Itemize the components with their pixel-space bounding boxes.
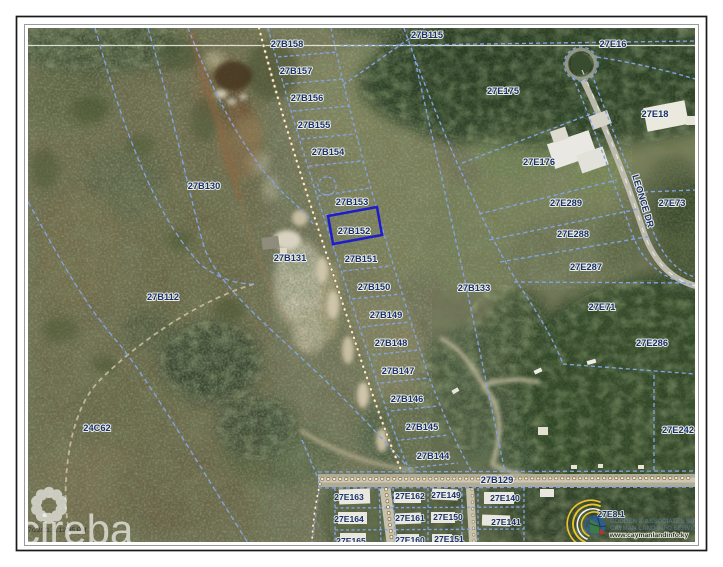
svg-text:27E161: 27E161 <box>395 513 425 523</box>
svg-text:24C62: 24C62 <box>83 423 110 433</box>
svg-text:CAYMAN LAND INFO SERVICES: CAYMAN LAND INFO SERVICES <box>610 525 705 532</box>
svg-text:27E175: 27E175 <box>487 86 519 96</box>
svg-text:27E176: 27E176 <box>523 157 555 167</box>
svg-text:27B158: 27B158 <box>271 39 304 49</box>
svg-text:27B153: 27B153 <box>336 197 369 207</box>
svg-text:27E162: 27E162 <box>395 491 425 501</box>
svg-text:27B131: 27B131 <box>274 253 307 263</box>
svg-text:27E16: 27E16 <box>600 39 627 49</box>
svg-text:27B145: 27B145 <box>406 422 439 432</box>
svg-text:27E242: 27E242 <box>662 425 694 435</box>
svg-text:27E288: 27E288 <box>557 229 589 239</box>
svg-text:27B133: 27B133 <box>458 283 491 293</box>
svg-text:27E150: 27E150 <box>433 512 463 522</box>
svg-text:27E287: 27E287 <box>570 262 602 272</box>
svg-text:27B129: 27B129 <box>481 475 514 485</box>
svg-text:27B148: 27B148 <box>375 338 408 348</box>
svg-text:27B154: 27B154 <box>312 147 345 157</box>
svg-text:27B155: 27B155 <box>298 120 331 130</box>
svg-text:27E73: 27E73 <box>659 198 686 208</box>
svg-text:27E286: 27E286 <box>636 338 668 348</box>
svg-text:27B150: 27B150 <box>358 282 391 292</box>
svg-text:27B152: 27B152 <box>338 226 371 236</box>
svg-text:27B151: 27B151 <box>345 254 378 264</box>
svg-text:27B146: 27B146 <box>391 394 424 404</box>
svg-text:27E163: 27E163 <box>334 492 364 502</box>
svg-text:27E71: 27E71 <box>589 302 616 312</box>
svg-text:27B115: 27B115 <box>411 30 443 40</box>
svg-text:27B156: 27B156 <box>291 93 324 103</box>
svg-text:27E289: 27E289 <box>550 198 582 208</box>
svg-text:27E164: 27E164 <box>334 514 364 524</box>
svg-text:27B149: 27B149 <box>370 310 403 320</box>
svg-text:27E140: 27E140 <box>490 493 520 503</box>
svg-text:27B112: 27B112 <box>147 292 179 302</box>
svg-text:27E141: 27E141 <box>491 517 521 527</box>
svg-text:27B130: 27B130 <box>188 181 221 191</box>
svg-text:www.caymanlandinfo.ky: www.caymanlandinfo.ky <box>609 532 689 539</box>
svg-text:27E149: 27E149 <box>431 490 461 500</box>
svg-text:27B157: 27B157 <box>280 66 313 76</box>
svg-text:27B147: 27B147 <box>382 366 415 376</box>
svg-text:27E18: 27E18 <box>642 109 669 119</box>
svg-text:27B144: 27B144 <box>417 451 450 461</box>
